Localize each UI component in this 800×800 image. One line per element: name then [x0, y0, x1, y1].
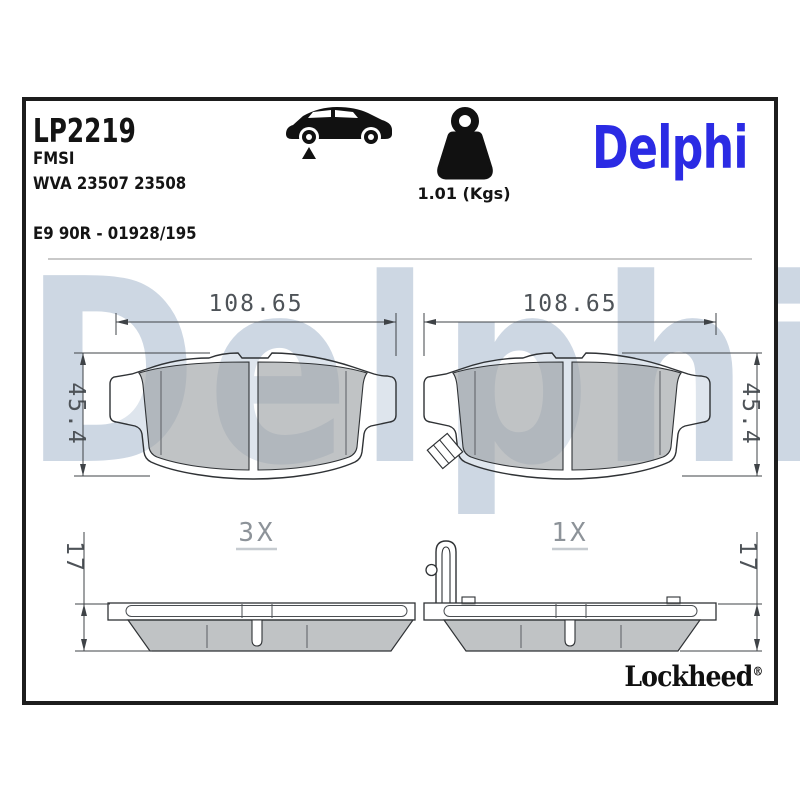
wva-numbers: WVA 23507 23508 [33, 176, 186, 193]
weight-value: 1.01 (Kgs) [404, 184, 524, 203]
spring-clip [426, 541, 456, 603]
weight-icon [426, 106, 504, 184]
pad-side-right-drawing: 1X 17 [424, 518, 762, 651]
pad-side-left-drawing: 3X 17 [61, 518, 415, 651]
catalog-sheet: Delphi LP2219 FMSI WVA 23507 23508 E9 90… [0, 0, 800, 800]
delphi-logo: Delphi [592, 118, 748, 177]
weight-handle [455, 111, 475, 131]
dim-thickness-left: 17 [61, 541, 87, 573]
car-icon [283, 104, 395, 160]
pad-front-left-drawing: 108.65 45.4 [63, 291, 396, 479]
dim-height-right: 45.4 [737, 382, 763, 445]
dim-height-left: 45.4 [63, 382, 89, 445]
front-wheel-hub [306, 134, 312, 140]
fmsi-label: FMSI [33, 151, 74, 168]
front-axle-marker [302, 147, 316, 159]
quantity-left: 3X [238, 518, 275, 548]
dim-width-left: 108.65 [208, 291, 303, 317]
rear-wheel-hub [368, 134, 374, 140]
registered-mark: ® [752, 665, 762, 679]
lockheed-wordmark: Lockheed [624, 660, 752, 693]
dim-thickness-right: 17 [734, 541, 760, 573]
lockheed-logo: Lockheed® [624, 663, 762, 691]
pad-front-right-drawing: 108.65 45.4 [424, 291, 763, 479]
weight-body [439, 133, 492, 178]
homologation-number: E9 90R - 01928/195 [33, 226, 197, 243]
dim-width-right: 108.65 [522, 291, 617, 317]
part-number: LP2219 [33, 114, 136, 147]
quantity-right: 1X [551, 518, 588, 548]
